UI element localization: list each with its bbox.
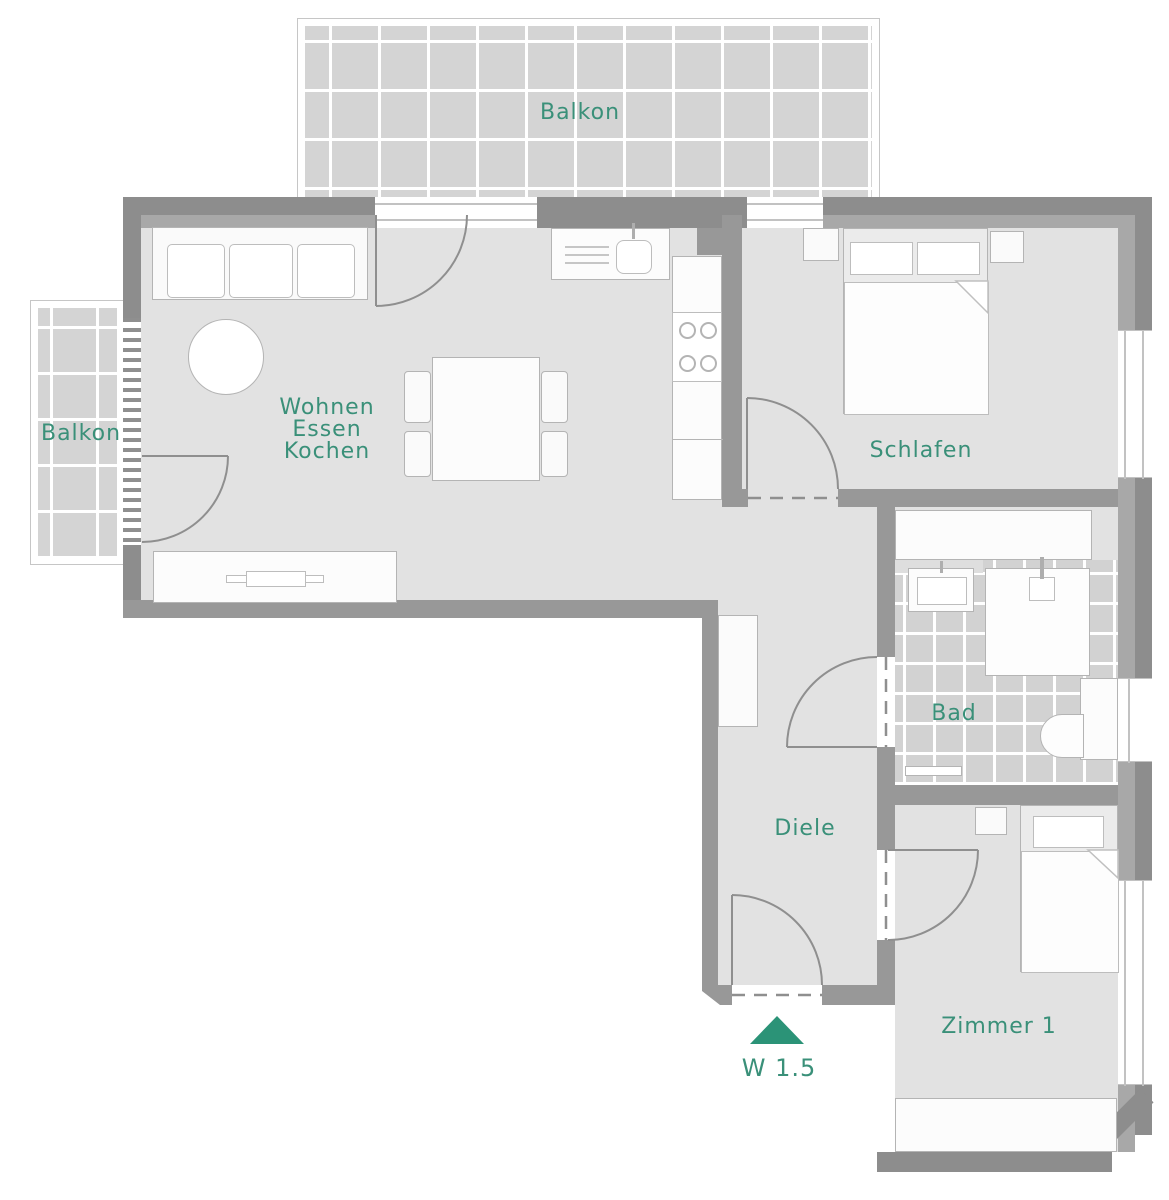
floor-plan: W 1.5 Balkon Balkon Wohnen Essen Kochen … [0,0,1169,1200]
label-hallway: Diele [774,818,835,840]
door-arc-bedroom [747,398,838,489]
label-living-line1: Wohnen [279,397,374,419]
entrance-triangle-icon [750,1016,804,1044]
label-living: Wohnen Essen Kochen [279,397,374,463]
door-arc-balcony-top [376,215,467,306]
unit-label: W 1.5 [742,1056,817,1080]
label-balcony-left: Balkon [41,423,121,445]
door-arc-bath [787,657,877,747]
door-arc-entrance [732,895,822,985]
label-living-line2: Essen [279,419,374,441]
label-bathroom: Bad [931,703,977,725]
door-arc-balcony-left [142,456,228,542]
label-room1: Zimmer 1 [941,1016,1057,1038]
label-living-line3: Kochen [279,441,374,463]
blanket-fold-zimmer1 [1088,850,1118,878]
door-arc-zimmer1 [888,850,978,940]
label-balcony-top: Balkon [540,102,620,124]
blanket-fold-bedroom [956,281,988,313]
label-bedroom: Schlafen [870,440,973,462]
